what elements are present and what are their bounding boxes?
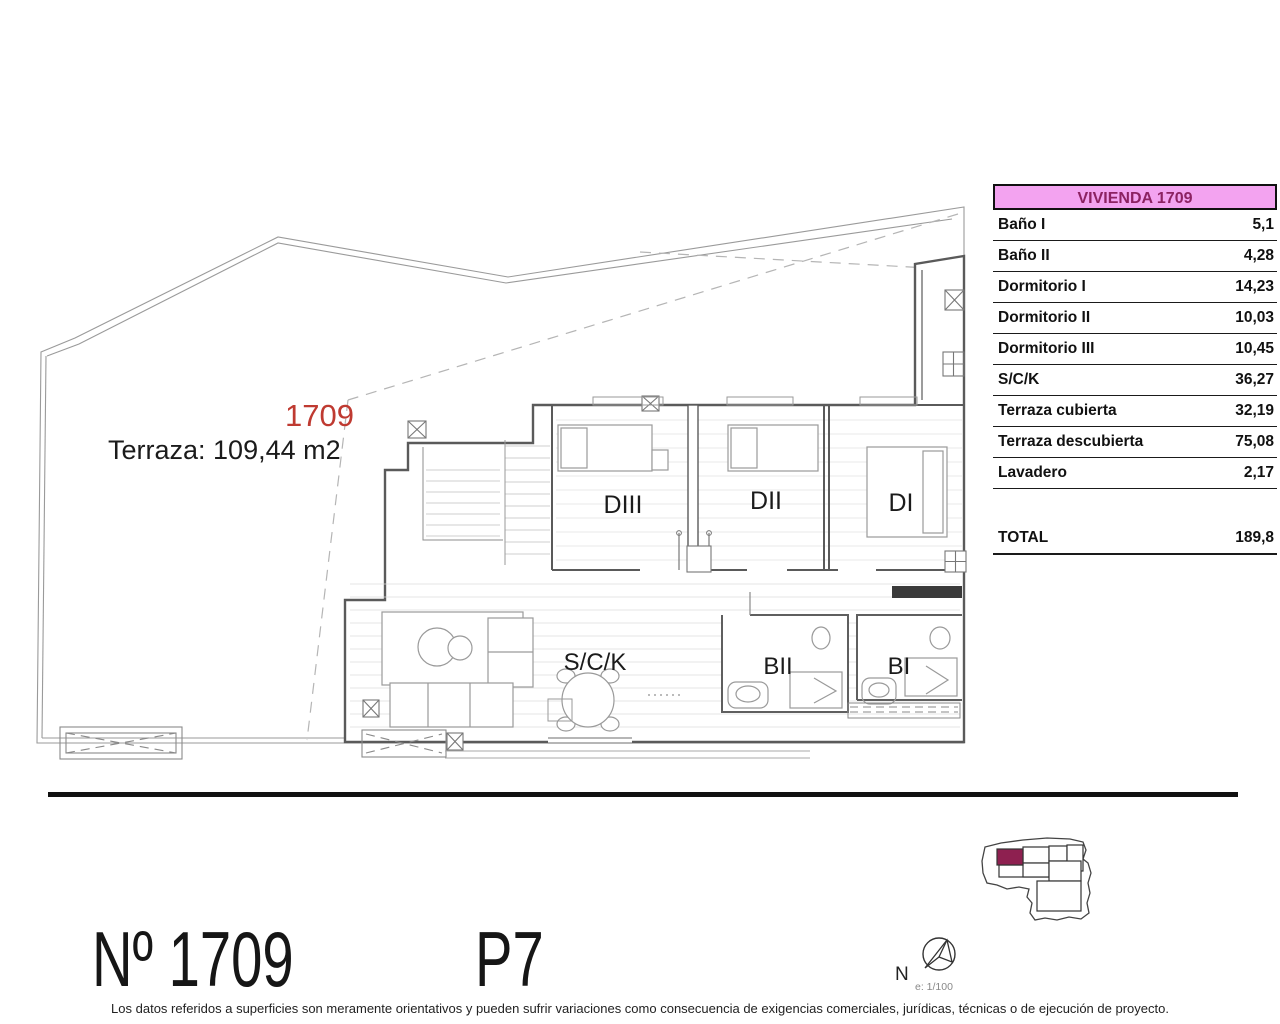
divider-line	[48, 792, 1238, 797]
room-name: Dormitorio II	[993, 303, 1090, 333]
room-name: S/C/K	[993, 365, 1039, 395]
room-label-bii: BII	[763, 653, 792, 680]
bed-diii	[558, 425, 668, 471]
kitchen-counter	[382, 612, 533, 727]
room-name: Dormitorio I	[993, 272, 1086, 302]
room-label-diii: DIII	[604, 491, 643, 519]
total-label: TOTAL	[993, 523, 1048, 553]
table-row: Dormitorio I 14,23	[993, 272, 1277, 303]
room-name: Terraza cubierta	[993, 396, 1117, 426]
total-value: 189,8	[1235, 523, 1277, 553]
disclaimer-text: Los datos referidos a superficies son me…	[30, 1001, 1250, 1016]
shear-wall	[892, 586, 962, 598]
room-area: 36,27	[1235, 365, 1277, 395]
room-name: Dormitorio III	[993, 334, 1094, 364]
north-label: N	[895, 964, 909, 985]
room-area: 2,17	[1244, 458, 1277, 488]
room-name: Baño I	[993, 210, 1045, 240]
room-area: 10,03	[1235, 303, 1277, 333]
room-area: 4,28	[1244, 241, 1277, 271]
room-area: 10,45	[1235, 334, 1277, 364]
room-name: Baño II	[993, 241, 1050, 271]
areas-table: VIVIENDA 1709 Baño I 5,1 Baño II 4,28 Do…	[993, 184, 1277, 555]
north-arrow: N e: 1/100	[880, 930, 980, 1000]
table-row: Terraza cubierta 32,19	[993, 396, 1277, 427]
keyplan-highlighted-unit	[997, 849, 1023, 865]
table-row: Dormitorio II 10,03	[993, 303, 1277, 334]
table-row: Lavadero 2,17	[993, 458, 1277, 489]
room-name: Terraza descubierta	[993, 427, 1143, 457]
entrance-door	[548, 734, 632, 748]
keyplan	[975, 835, 1105, 930]
room-area: 32,19	[1235, 396, 1277, 426]
table-row: Dormitorio III 10,45	[993, 334, 1277, 365]
room-area: 14,23	[1235, 272, 1277, 302]
table-row: Baño I 5,1	[993, 210, 1277, 241]
table-row: Terraza descubierta 75,08	[993, 427, 1277, 458]
areas-table-rows: Baño I 5,1 Baño II 4,28 Dormitorio I 14,…	[993, 210, 1277, 489]
table-row: Baño II 4,28	[993, 241, 1277, 272]
terrace-area-label: Terraza: 109,44 m2	[108, 435, 341, 465]
room-label-dii: DII	[750, 487, 782, 515]
room-label-di: DI	[889, 489, 914, 517]
room-area: 5,1	[1252, 210, 1277, 240]
table-row: S/C/K 36,27	[993, 365, 1277, 396]
room-name: Lavadero	[993, 458, 1067, 488]
bed-dii	[728, 425, 818, 471]
floorplan-sheet: 1709 Terraza: 109,44 m2 DIII DII DI S/C/…	[0, 0, 1280, 1024]
scale-label: e: 1/100	[915, 981, 953, 993]
room-label-bi: BI	[888, 653, 911, 680]
room-label-sck: S/C/K	[564, 649, 627, 676]
unit-number-label: 1709	[285, 398, 354, 433]
table-total-row: TOTAL 189,8	[993, 523, 1277, 555]
room-area: 75,08	[1235, 427, 1277, 457]
exterior-steps	[445, 751, 810, 758]
footer-floor-label: P7	[475, 920, 544, 998]
dining-table	[557, 669, 619, 731]
areas-table-header: VIVIENDA 1709	[993, 184, 1277, 210]
footer-unit-number: Nº 1709	[92, 920, 294, 998]
